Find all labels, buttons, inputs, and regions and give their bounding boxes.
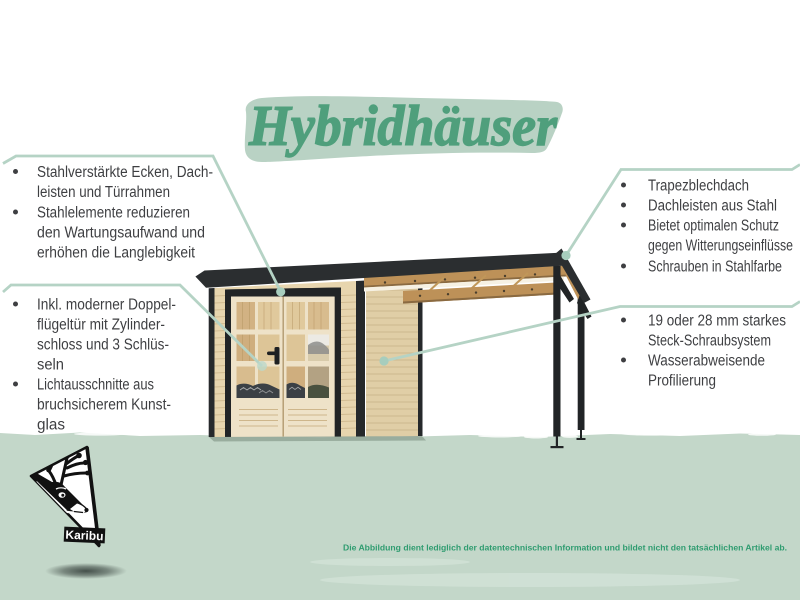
svg-text:Profilierung: Profilierung (648, 372, 716, 389)
svg-text:erhöhen die Langlebigkeit: erhöhen die Langlebigkeit (37, 245, 196, 262)
svg-text:leisten und Türrahmen: leisten und Türrahmen (37, 184, 170, 201)
svg-text:Bietet optimalen Schutz: Bietet optimalen Schutz (648, 217, 779, 234)
svg-text:flügeltür mit Zylinder-: flügeltür mit Zylinder- (37, 316, 165, 333)
svg-text:schloss und 3 Schlüs-: schloss und 3 Schlüs- (37, 336, 169, 353)
svg-text:glas: glas (37, 416, 65, 433)
svg-text:Inkl. moderner Doppel-: Inkl. moderner Doppel- (37, 296, 176, 313)
svg-text:Die Abbildung dient lediglich: Die Abbildung dient lediglich der datent… (343, 544, 787, 553)
svg-text:gegen Witterungseinflüsse: gegen Witterungseinflüsse (648, 237, 793, 254)
svg-text:bruchsicherem Kunst-: bruchsicherem Kunst- (37, 396, 171, 413)
svg-text:Stahlelemente reduzieren: Stahlelemente reduzieren (37, 204, 190, 221)
svg-text:Stahlverstärkte Ecken, Dach-: Stahlverstärkte Ecken, Dach- (37, 164, 213, 181)
svg-text:Karibu: Karibu (65, 528, 104, 544)
svg-text:Schrauben in Stahlfarbe: Schrauben in Stahlfarbe (648, 258, 782, 275)
svg-text:Lichtausschnitte aus: Lichtausschnitte aus (37, 376, 154, 393)
svg-text:Wasserabweisende: Wasserabweisende (648, 352, 765, 369)
svg-text:den Wartungsaufwand und: den Wartungsaufwand und (37, 224, 205, 241)
svg-text:Trapezblechdach: Trapezblechdach (648, 177, 749, 194)
svg-text:Hybridhäuser: Hybridhäuser (248, 95, 558, 158)
svg-text:Dachleisten aus Stahl: Dachleisten aus Stahl (648, 197, 777, 214)
svg-text:Steck-Schraubsystem: Steck-Schraubsystem (648, 332, 771, 349)
svg-text:seln: seln (37, 356, 64, 373)
svg-text:19 oder 28 mm starkes: 19 oder 28 mm starkes (648, 312, 786, 329)
